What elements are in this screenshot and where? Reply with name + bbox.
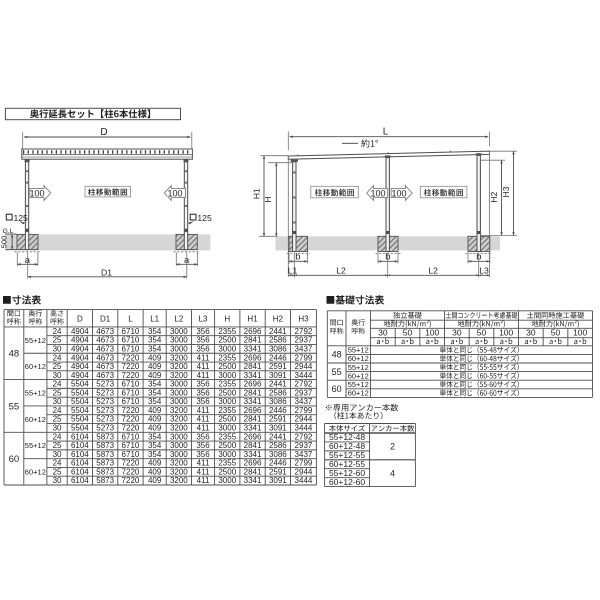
svg-text:356: 356	[196, 336, 210, 345]
svg-text:3444: 3444	[295, 476, 313, 485]
svg-text:48: 48	[9, 349, 20, 360]
svg-text:L2: L2	[336, 266, 346, 276]
svg-text:H1: H1	[252, 188, 262, 199]
svg-text:2696: 2696	[244, 327, 262, 336]
svg-text:100: 100	[370, 188, 385, 198]
svg-text:409: 409	[148, 424, 162, 433]
svg-text:60+12: 60+12	[25, 468, 46, 477]
svg-text:5504: 5504	[71, 397, 89, 406]
svg-text:2792: 2792	[295, 432, 313, 441]
svg-text:L2: L2	[428, 266, 438, 276]
svg-text:2591: 2591	[269, 415, 287, 424]
svg-text:3200: 3200	[170, 459, 188, 468]
svg-text:2696: 2696	[244, 459, 262, 468]
svg-text:3000: 3000	[170, 388, 188, 397]
svg-text:25: 25	[53, 441, 62, 450]
svg-text:409: 409	[148, 459, 162, 468]
svg-text:411: 411	[197, 476, 210, 485]
svg-text:2944: 2944	[295, 467, 313, 476]
svg-text:7220: 7220	[122, 362, 140, 371]
svg-text:60+12: 60+12	[348, 389, 369, 398]
svg-text:356: 356	[196, 397, 210, 406]
svg-text:354: 354	[148, 397, 162, 406]
svg-text:30: 30	[53, 344, 62, 353]
svg-text:125: 125	[14, 213, 29, 223]
svg-text:6710: 6710	[122, 441, 140, 450]
svg-text:2441: 2441	[269, 380, 287, 389]
svg-text:7220: 7220	[122, 467, 140, 476]
svg-text:30: 30	[53, 371, 62, 380]
svg-text:5504: 5504	[71, 388, 89, 397]
svg-text:55: 55	[332, 367, 342, 377]
svg-text:2500: 2500	[218, 467, 236, 476]
svg-text:356: 356	[196, 380, 210, 389]
svg-text:411: 411	[197, 467, 210, 476]
svg-text:3000: 3000	[170, 397, 188, 406]
svg-text:3341: 3341	[244, 476, 262, 485]
svg-text:3000: 3000	[218, 476, 236, 485]
svg-text:2355: 2355	[218, 380, 236, 389]
svg-text:2355: 2355	[218, 353, 236, 362]
svg-text:4673: 4673	[96, 353, 114, 362]
svg-text:25: 25	[53, 388, 62, 397]
svg-text:4673: 4673	[96, 371, 114, 380]
svg-text:6710: 6710	[122, 336, 140, 345]
svg-text:100: 100	[29, 188, 44, 198]
svg-text:3000: 3000	[218, 371, 236, 380]
svg-text:3000: 3000	[218, 397, 236, 406]
svg-text:30: 30	[53, 397, 62, 406]
svg-text:354: 354	[148, 432, 162, 441]
svg-text:500: 500	[0, 236, 9, 249]
svg-text:5504: 5504	[71, 380, 89, 389]
svg-text:3200: 3200	[170, 406, 188, 415]
svg-text:3200: 3200	[170, 415, 188, 424]
svg-text:5873: 5873	[96, 459, 114, 468]
svg-text:50: 50	[477, 328, 487, 338]
svg-text:L1: L1	[150, 315, 159, 324]
svg-text:409: 409	[148, 476, 162, 485]
svg-text:409: 409	[148, 467, 162, 476]
svg-text:6104: 6104	[71, 476, 89, 485]
svg-text:60: 60	[332, 384, 342, 394]
svg-text:409: 409	[148, 371, 162, 380]
svg-text:2696: 2696	[244, 380, 262, 389]
svg-text:7220: 7220	[122, 353, 140, 362]
svg-text:D: D	[77, 315, 83, 324]
svg-text:4904: 4904	[71, 371, 89, 380]
svg-text:409: 409	[148, 406, 162, 415]
svg-text:2937: 2937	[295, 441, 313, 450]
svg-text:2441: 2441	[269, 327, 287, 336]
svg-text:7220: 7220	[122, 424, 140, 433]
svg-text:2792: 2792	[295, 327, 313, 336]
svg-text:6710: 6710	[122, 397, 140, 406]
svg-text:5273: 5273	[96, 415, 114, 424]
svg-text:4904: 4904	[71, 344, 89, 353]
svg-text:2500: 2500	[218, 415, 236, 424]
svg-text:3000: 3000	[218, 424, 236, 433]
svg-text:3437: 3437	[295, 450, 313, 459]
svg-text:L: L	[383, 127, 389, 138]
svg-text:2696: 2696	[244, 406, 262, 415]
svg-text:3200: 3200	[170, 371, 188, 380]
svg-text:4673: 4673	[96, 336, 114, 345]
svg-text:3444: 3444	[295, 424, 313, 433]
svg-text:100: 100	[499, 328, 513, 338]
svg-text:24: 24	[53, 327, 62, 336]
svg-text:2446: 2446	[269, 406, 287, 415]
svg-text:H2: H2	[489, 191, 499, 202]
svg-text:25: 25	[53, 415, 62, 424]
svg-text:L2: L2	[174, 315, 183, 324]
svg-text:H3: H3	[298, 315, 309, 324]
svg-text:356: 356	[196, 344, 210, 353]
svg-text:3437: 3437	[295, 344, 313, 353]
svg-text:354: 354	[148, 327, 162, 336]
svg-text:3091: 3091	[269, 476, 287, 485]
svg-text:6710: 6710	[122, 327, 140, 336]
svg-text:3086: 3086	[269, 397, 287, 406]
svg-text:2500: 2500	[218, 441, 236, 450]
svg-text:354: 354	[148, 336, 162, 345]
svg-text:b: b	[295, 251, 300, 262]
svg-text:6710: 6710	[122, 380, 140, 389]
svg-text:125: 125	[197, 213, 212, 223]
svg-text:3091: 3091	[269, 371, 287, 380]
svg-text:3200: 3200	[170, 476, 188, 485]
svg-text:3341: 3341	[244, 371, 262, 380]
svg-text:354: 354	[148, 344, 162, 353]
svg-text:4904: 4904	[71, 327, 89, 336]
svg-text:6710: 6710	[122, 432, 140, 441]
svg-text:100: 100	[425, 328, 439, 338]
svg-text:100: 100	[573, 328, 587, 338]
svg-text:D1: D1	[101, 267, 112, 277]
svg-text:2937: 2937	[295, 336, 313, 345]
svg-text:3086: 3086	[269, 344, 287, 353]
svg-text:2591: 2591	[269, 467, 287, 476]
svg-text:2841: 2841	[244, 336, 262, 345]
svg-text:H3: H3	[501, 186, 511, 197]
svg-text:30: 30	[378, 328, 388, 338]
svg-text:24: 24	[53, 353, 62, 362]
svg-text:60+12: 60+12	[25, 362, 46, 371]
svg-text:2586: 2586	[269, 441, 287, 450]
svg-text:55+12: 55+12	[25, 388, 46, 397]
svg-text:30: 30	[53, 450, 62, 459]
svg-text:60+12: 60+12	[25, 415, 46, 424]
svg-text:2586: 2586	[269, 336, 287, 345]
svg-text:2944: 2944	[295, 362, 313, 371]
svg-text:2792: 2792	[295, 380, 313, 389]
svg-text:3000: 3000	[170, 441, 188, 450]
svg-text:100: 100	[391, 188, 406, 198]
svg-text:30: 30	[452, 328, 462, 338]
svg-text:48: 48	[332, 350, 342, 360]
svg-text:6104: 6104	[71, 467, 89, 476]
svg-text:55: 55	[9, 401, 20, 412]
svg-text:L1: L1	[288, 266, 298, 276]
svg-text:2841: 2841	[244, 415, 262, 424]
svg-text:6104: 6104	[71, 459, 89, 468]
svg-text:3341: 3341	[244, 344, 262, 353]
svg-text:25: 25	[53, 362, 62, 371]
svg-text:2: 2	[390, 442, 395, 452]
svg-text:2441: 2441	[269, 432, 287, 441]
svg-text:6710: 6710	[122, 450, 140, 459]
svg-text:411: 411	[197, 406, 210, 415]
svg-text:6710: 6710	[122, 344, 140, 353]
svg-text:5873: 5873	[96, 476, 114, 485]
svg-text:5273: 5273	[96, 397, 114, 406]
svg-text:3086: 3086	[269, 450, 287, 459]
svg-text:411: 411	[197, 415, 210, 424]
svg-text:25: 25	[53, 467, 62, 476]
svg-text:50: 50	[403, 328, 413, 338]
svg-text:6104: 6104	[71, 441, 89, 450]
svg-text:6104: 6104	[71, 450, 89, 459]
svg-text:5873: 5873	[96, 441, 114, 450]
svg-text:356: 356	[196, 450, 210, 459]
svg-text:3000: 3000	[170, 336, 188, 345]
svg-text:5273: 5273	[96, 406, 114, 415]
svg-text:60+12-60: 60+12-60	[329, 477, 365, 487]
svg-text:4673: 4673	[96, 344, 114, 353]
svg-text:D1: D1	[100, 315, 111, 324]
svg-text:5504: 5504	[71, 415, 89, 424]
svg-text:5873: 5873	[96, 450, 114, 459]
svg-text:4904: 4904	[71, 336, 89, 345]
svg-text:356: 356	[196, 327, 210, 336]
svg-text:3200: 3200	[170, 362, 188, 371]
svg-text:2841: 2841	[244, 467, 262, 476]
svg-text:H: H	[263, 197, 273, 203]
svg-text:L3: L3	[199, 315, 208, 324]
svg-text:411: 411	[197, 362, 210, 371]
svg-text:3200: 3200	[170, 353, 188, 362]
svg-text:356: 356	[196, 441, 210, 450]
svg-text:H1: H1	[247, 315, 258, 324]
svg-text:2841: 2841	[244, 362, 262, 371]
svg-text:2799: 2799	[295, 459, 313, 468]
svg-text:24: 24	[53, 406, 62, 415]
svg-text:3000: 3000	[170, 450, 188, 459]
svg-text:2841: 2841	[244, 441, 262, 450]
svg-text:30: 30	[526, 328, 536, 338]
svg-text:2355: 2355	[218, 432, 236, 441]
svg-text:354: 354	[148, 441, 162, 450]
svg-text:3000: 3000	[218, 450, 236, 459]
svg-text:6104: 6104	[71, 432, 89, 441]
svg-text:2500: 2500	[218, 362, 236, 371]
svg-text:5273: 5273	[96, 424, 114, 433]
svg-text:2799: 2799	[295, 406, 313, 415]
svg-text:3200: 3200	[170, 467, 188, 476]
svg-text:3437: 3437	[295, 397, 313, 406]
svg-text:2355: 2355	[218, 406, 236, 415]
svg-text:3091: 3091	[269, 424, 287, 433]
svg-text:2799: 2799	[295, 353, 313, 362]
svg-text:4673: 4673	[96, 327, 114, 336]
svg-text:3341: 3341	[244, 450, 262, 459]
svg-text:409: 409	[148, 362, 162, 371]
svg-text:L3: L3	[479, 266, 489, 276]
svg-text:7220: 7220	[122, 371, 140, 380]
svg-text:411: 411	[197, 459, 210, 468]
svg-text:3341: 3341	[244, 397, 262, 406]
svg-text:55+12: 55+12	[25, 441, 46, 450]
svg-text:H2: H2	[273, 315, 284, 324]
svg-text:3000: 3000	[218, 344, 236, 353]
svg-text:6710: 6710	[122, 388, 140, 397]
svg-text:5273: 5273	[96, 380, 114, 389]
svg-text:3000: 3000	[170, 327, 188, 336]
svg-text:2696: 2696	[244, 353, 262, 362]
svg-text:7220: 7220	[122, 415, 140, 424]
svg-text:24: 24	[53, 459, 62, 468]
svg-text:2591: 2591	[269, 362, 287, 371]
svg-text:2500: 2500	[218, 336, 236, 345]
svg-text:24: 24	[53, 432, 62, 441]
svg-text:60: 60	[9, 454, 20, 465]
svg-text:3341: 3341	[244, 424, 262, 433]
svg-text:5873: 5873	[96, 432, 114, 441]
svg-text:24: 24	[53, 380, 62, 389]
svg-text:2841: 2841	[244, 388, 262, 397]
svg-text:5504: 5504	[71, 424, 89, 433]
svg-text:2944: 2944	[295, 415, 313, 424]
svg-text:5273: 5273	[96, 388, 114, 397]
svg-text:D: D	[100, 127, 107, 138]
svg-text:3000: 3000	[170, 344, 188, 353]
svg-text:356: 356	[196, 432, 210, 441]
svg-text:30: 30	[53, 476, 62, 485]
svg-text:5873: 5873	[96, 467, 114, 476]
svg-text:354: 354	[148, 388, 162, 397]
svg-text:5504: 5504	[71, 406, 89, 415]
svg-text:4: 4	[390, 468, 395, 478]
svg-text:354: 354	[148, 450, 162, 459]
svg-text:4673: 4673	[96, 362, 114, 371]
svg-text:409: 409	[148, 353, 162, 362]
svg-text:409: 409	[148, 415, 162, 424]
svg-text:100: 100	[167, 188, 182, 198]
svg-text:30: 30	[53, 424, 62, 433]
svg-text:4904: 4904	[71, 362, 89, 371]
svg-text:2355: 2355	[218, 327, 236, 336]
svg-text:L: L	[128, 315, 133, 324]
svg-text:354: 354	[148, 380, 162, 389]
svg-text:3200: 3200	[170, 424, 188, 433]
svg-text:411: 411	[197, 353, 210, 362]
svg-text:356: 356	[196, 388, 210, 397]
svg-text:55+12: 55+12	[25, 336, 46, 345]
svg-text:411: 411	[197, 424, 210, 433]
svg-text:2446: 2446	[269, 459, 287, 468]
svg-text:7220: 7220	[122, 476, 140, 485]
svg-text:50: 50	[551, 328, 561, 338]
svg-text:2696: 2696	[244, 432, 262, 441]
svg-text:7220: 7220	[122, 406, 140, 415]
svg-text:411: 411	[197, 371, 210, 380]
svg-text:2586: 2586	[269, 388, 287, 397]
svg-text:4904: 4904	[71, 353, 89, 362]
svg-text:2355: 2355	[218, 459, 236, 468]
svg-text:3000: 3000	[170, 432, 188, 441]
svg-text:2500: 2500	[218, 388, 236, 397]
svg-text:2446: 2446	[269, 353, 287, 362]
svg-text:3444: 3444	[295, 371, 313, 380]
svg-text:3000: 3000	[170, 380, 188, 389]
svg-text:25: 25	[53, 336, 62, 345]
svg-text:H: H	[224, 315, 230, 324]
svg-text:2937: 2937	[295, 388, 313, 397]
svg-text:7220: 7220	[122, 459, 140, 468]
